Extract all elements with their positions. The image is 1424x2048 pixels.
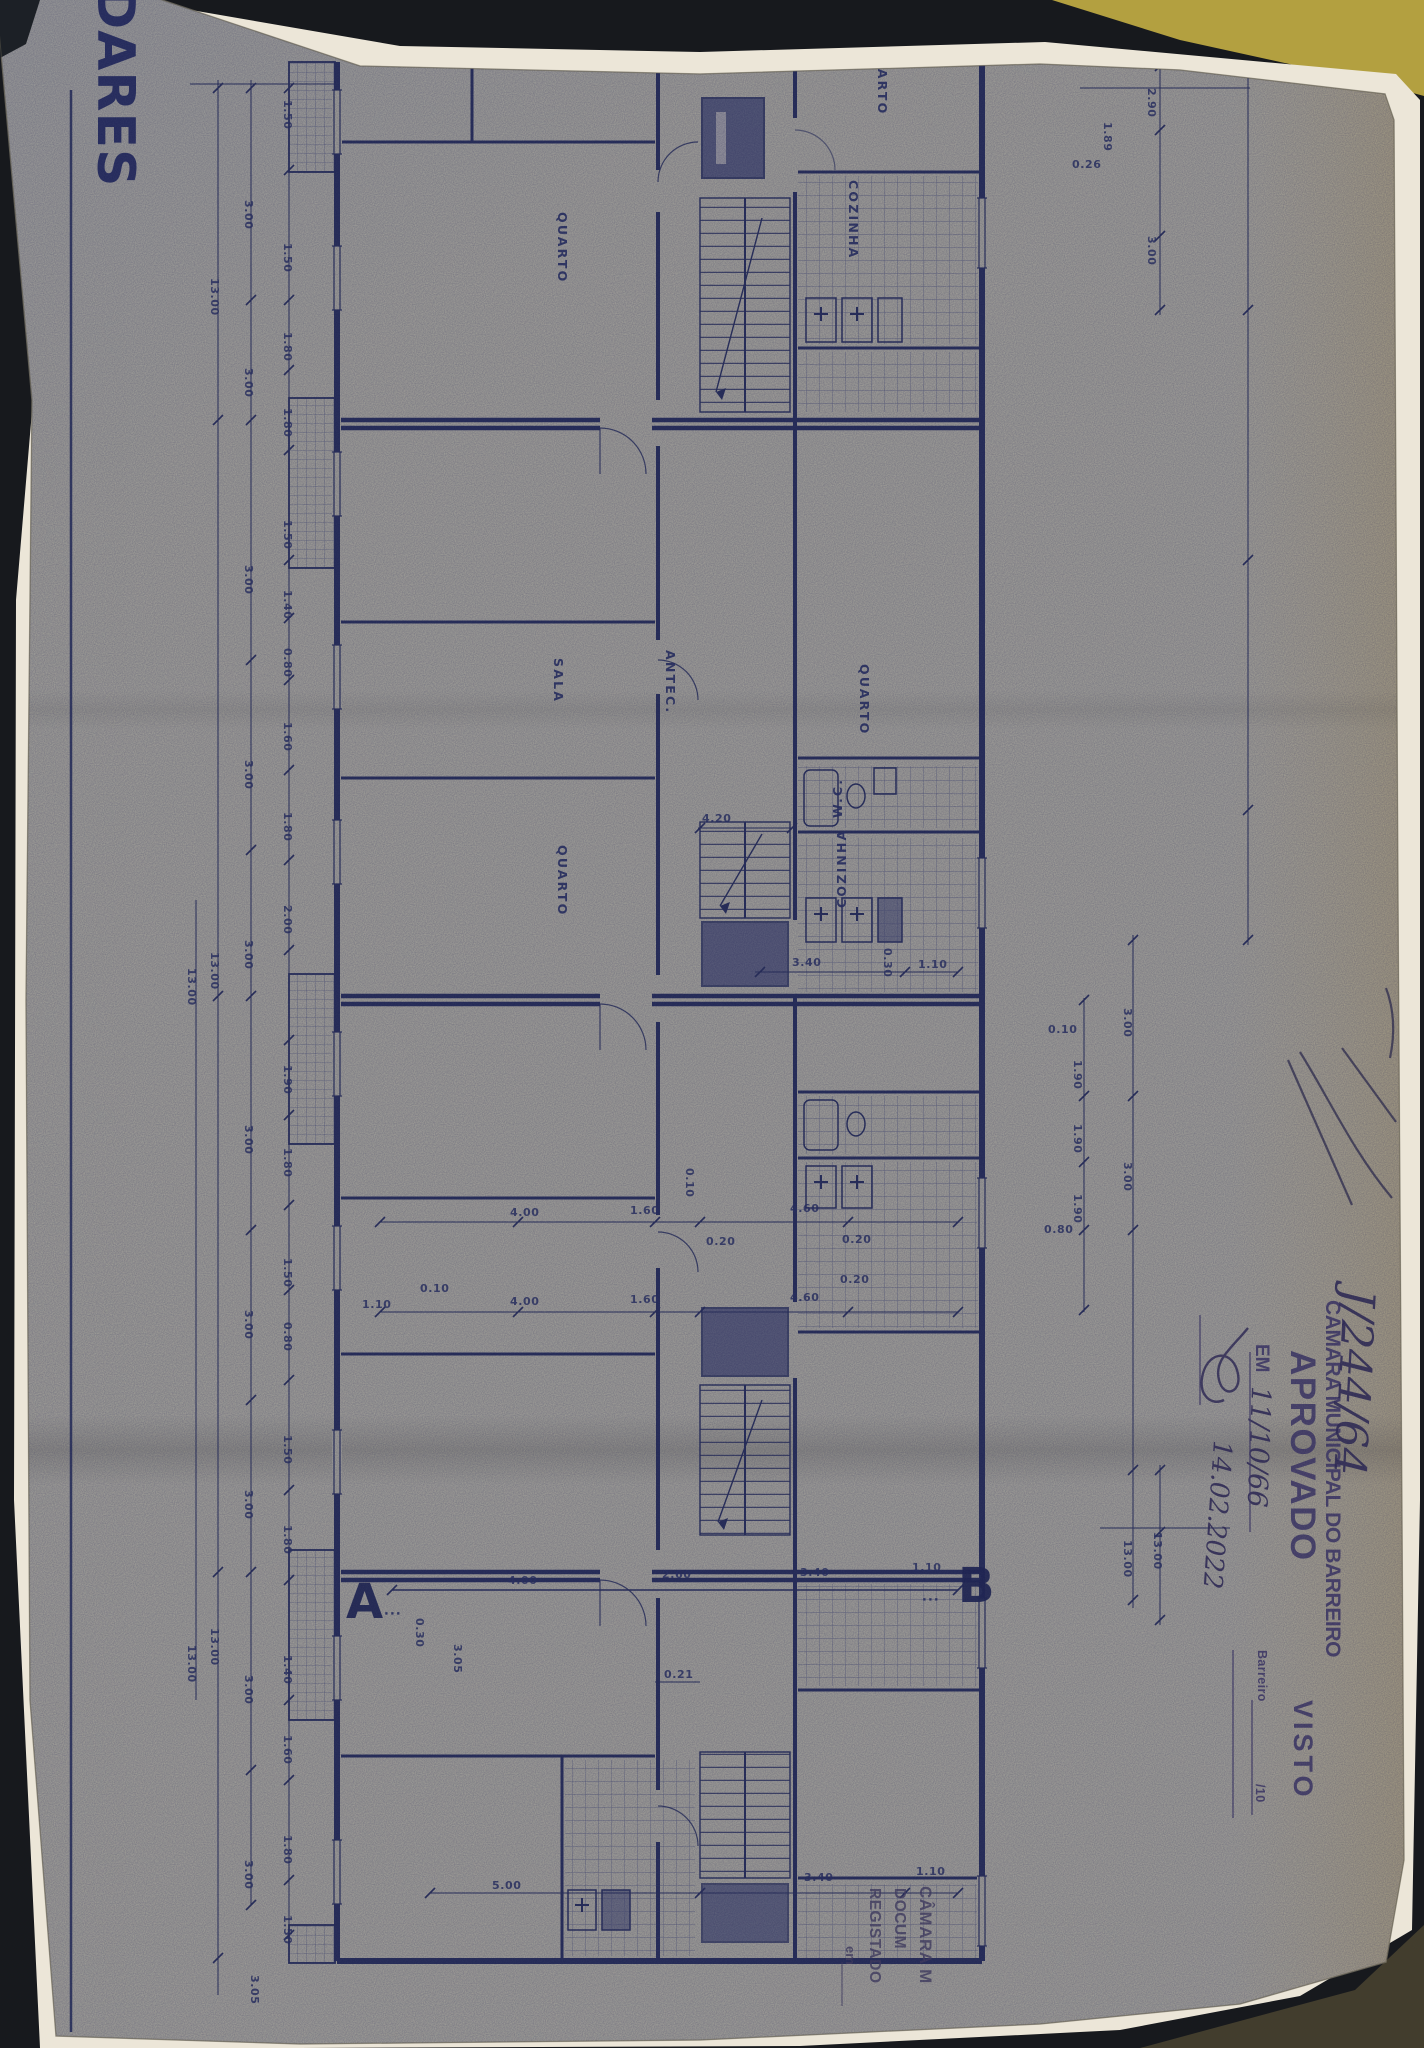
film-grain xyxy=(0,0,1424,2048)
photo-of-blueprint: DARES QUARTOCOZINHAQUARTOSALAANTEC.QUART… xyxy=(0,0,1424,2048)
blueprint-photo-canvas: DARES QUARTOCOZINHAQUARTOSALAANTEC.QUART… xyxy=(0,0,1424,2048)
